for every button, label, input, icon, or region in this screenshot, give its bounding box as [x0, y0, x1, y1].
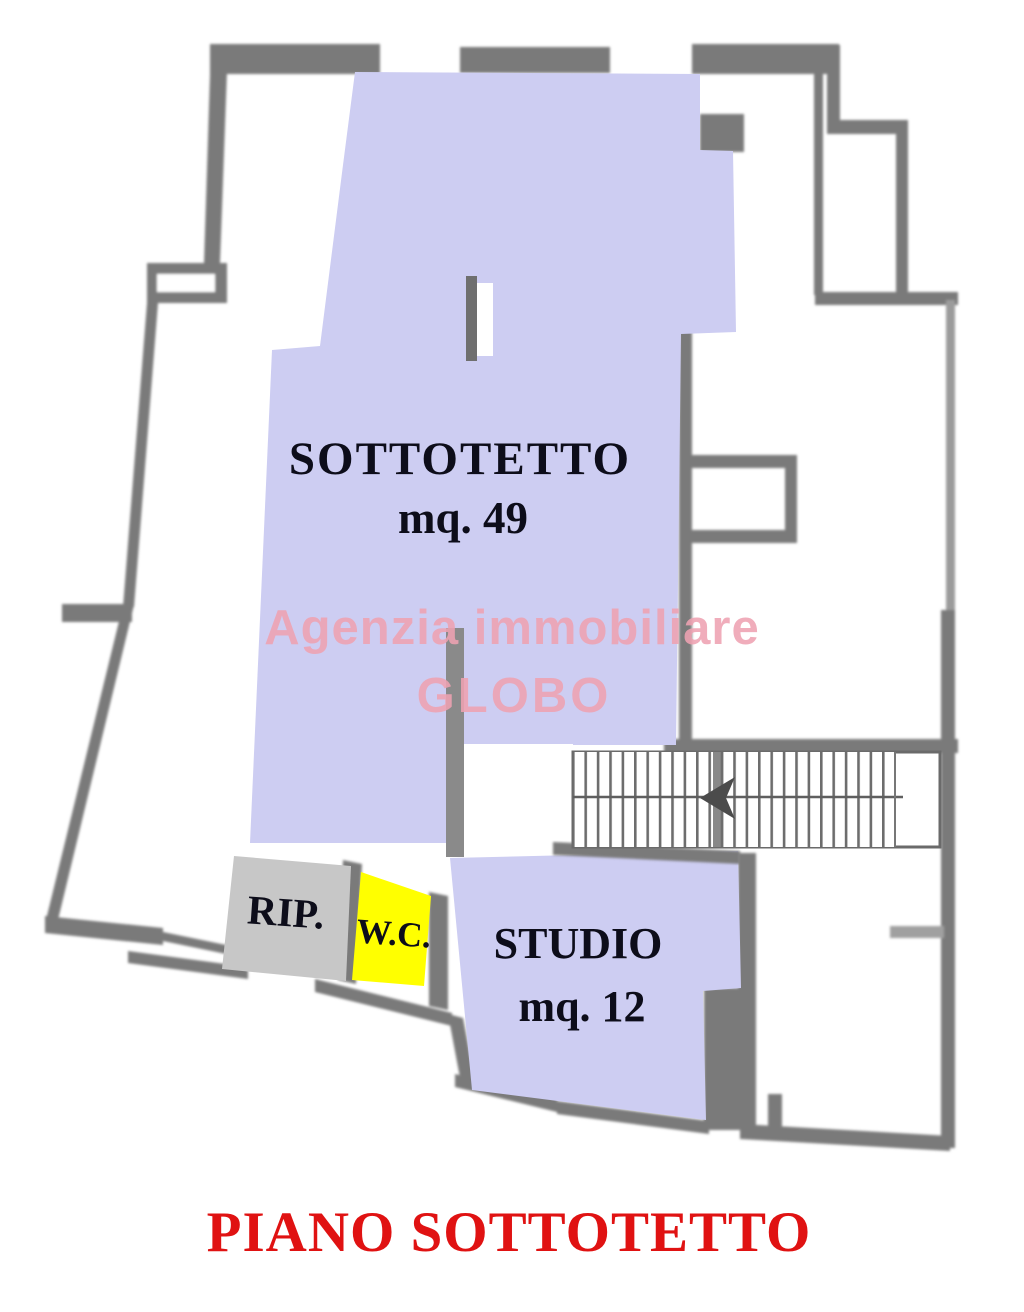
floor-plan-page: SOTTOTETTO mq. 49 RIP. W.C. STUDIO mq. 1…	[0, 0, 1024, 1312]
label-sottotetto: SOTTOTETTO	[289, 433, 631, 485]
stairs	[573, 752, 940, 847]
label-studio-area: mq. 12	[518, 982, 645, 1031]
rooms	[222, 72, 741, 1120]
label-wc: W.C.	[355, 911, 432, 955]
plan-title: PIANO SOTTOTETTO	[207, 1201, 812, 1264]
label-rip: RIP.	[246, 886, 326, 937]
flue-slit-top	[466, 276, 493, 361]
watermark-line1: Agenzia immobiliare	[264, 601, 760, 655]
label-studio: STUDIO	[494, 919, 663, 968]
watermark-line2: GLOBO	[417, 669, 612, 723]
label-sottotetto-area: mq. 49	[398, 493, 528, 543]
floor-plan: SOTTOTETTO mq. 49 RIP. W.C. STUDIO mq. 1…	[0, 0, 1024, 1312]
